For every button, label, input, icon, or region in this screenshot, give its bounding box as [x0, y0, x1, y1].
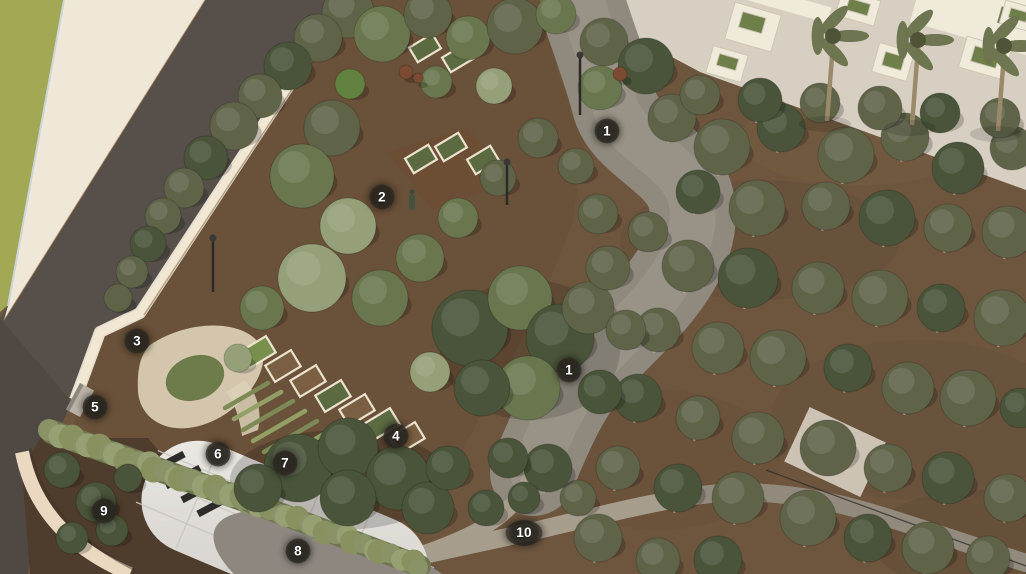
plan-marker[interactable]: 4	[384, 424, 409, 449]
plan-marker[interactable]: 10	[506, 520, 543, 546]
person-figure	[409, 189, 415, 210]
plan-marker[interactable]: 6	[206, 442, 231, 467]
plan-marker[interactable]: 5	[83, 395, 108, 420]
plan-marker[interactable]: 9	[92, 499, 117, 524]
site-plan-rendering: 123154679108	[0, 0, 1026, 574]
plan-marker[interactable]: 1	[557, 358, 582, 383]
plan-marker[interactable]: 1	[595, 119, 620, 144]
garden-path	[138, 326, 263, 436]
plan-marker[interactable]: 8	[286, 539, 311, 564]
plan-marker[interactable]: 2	[370, 185, 395, 210]
plan-marker[interactable]: 3	[125, 329, 150, 354]
plan-marker[interactable]: 7	[273, 451, 298, 476]
